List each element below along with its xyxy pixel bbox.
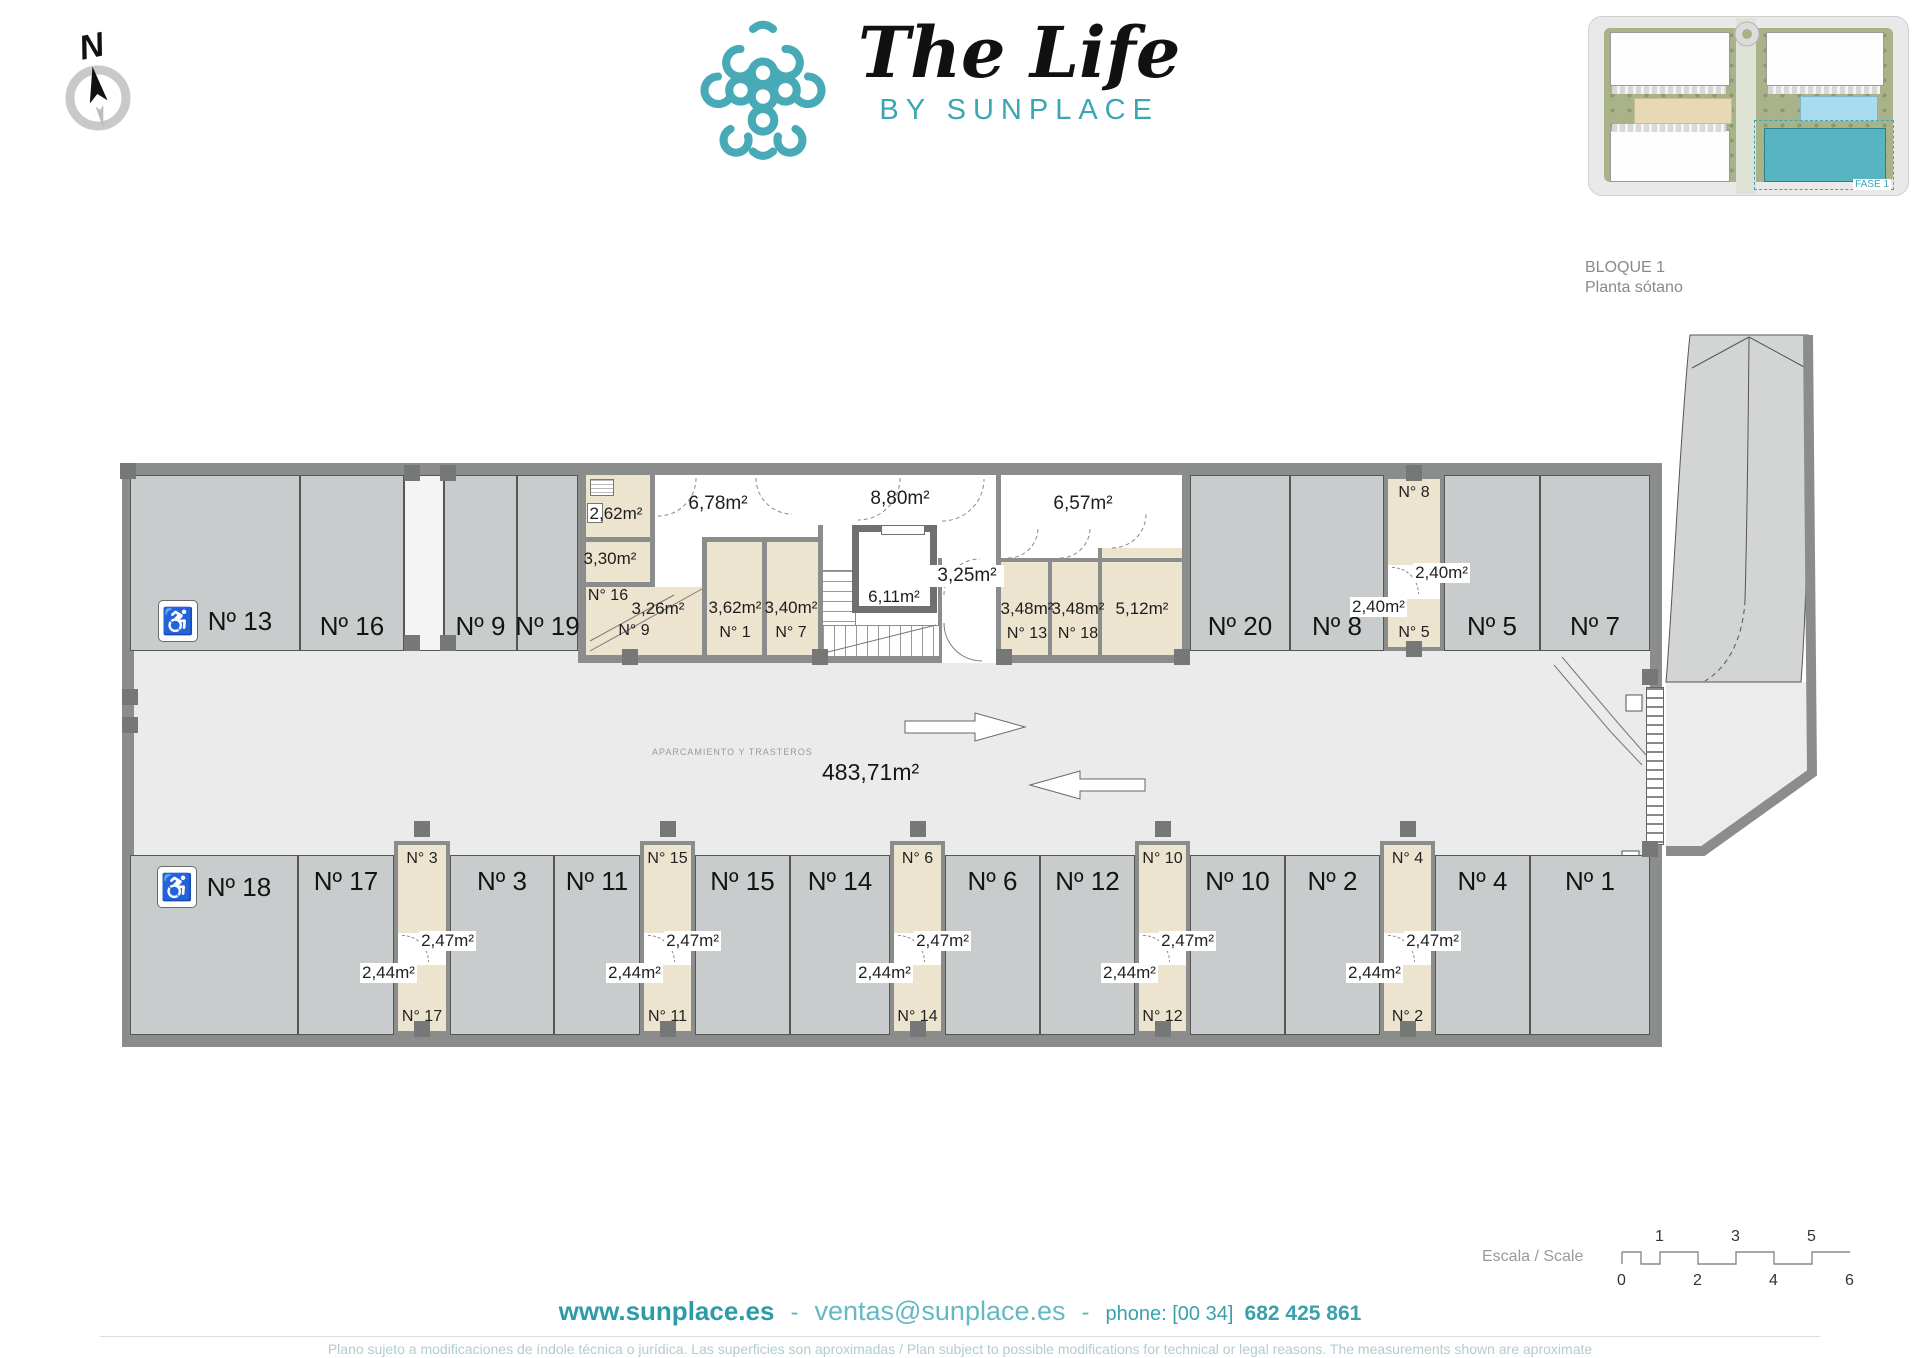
footer-divider	[100, 1336, 1820, 1337]
thumb-pool	[1800, 96, 1878, 122]
gate-guide-lines	[1522, 643, 1662, 873]
room-name: N° 9	[608, 622, 660, 640]
storage-room-area: 2,44m²	[1101, 963, 1158, 983]
block-info-line2: Planta sótano	[1585, 278, 1683, 298]
thumb-building-ne	[1766, 32, 1884, 86]
area-label: 3,30m²	[578, 549, 642, 569]
structural-pillar	[404, 465, 420, 481]
storage-room-area: 2,47m²	[664, 931, 721, 951]
structural-pillar	[1406, 465, 1422, 481]
parking-stall-Nº-17: Nº 17	[298, 855, 394, 1035]
area-label: 3,40m²	[762, 598, 820, 618]
structural-pillar	[122, 717, 138, 733]
scale-tick: 1	[1655, 1228, 1664, 1246]
storage-column: N° 8N° 52,40m²2,40m²	[1384, 475, 1444, 651]
thumb-building-nw	[1610, 32, 1730, 86]
storage-room-area: 2,47m²	[1159, 931, 1216, 951]
website-text: www.sunplace.es	[559, 1296, 775, 1327]
parking-stall-Nº-9: Nº 9	[444, 475, 517, 651]
parking-stall-Nº-2: Nº 2	[1285, 855, 1380, 1035]
structural-pillar	[440, 635, 456, 651]
structural-pillar	[404, 635, 420, 651]
structural-pillar	[1155, 821, 1171, 837]
stall-label-row: Nº 5	[1445, 611, 1539, 642]
storage-room-area: 2,44m²	[360, 963, 417, 983]
structural-pillar	[910, 1021, 926, 1037]
room-name: N° 18	[1050, 625, 1106, 643]
structural-pillar	[1406, 641, 1422, 657]
stall-label-row: Nº 12	[1041, 866, 1134, 897]
stall-label: Nº 1	[1565, 866, 1615, 897]
room-name: N° 13	[998, 625, 1056, 643]
stall-label: Nº 3	[477, 866, 527, 897]
wall-right-lower	[1650, 843, 1662, 1047]
block-info-line1: BLOQUE 1	[1585, 258, 1683, 278]
room-name: N° 1	[706, 624, 764, 642]
email-text: ventas@sunplace.es	[814, 1296, 1065, 1327]
parking-stall-Nº-19: Nº 19	[517, 475, 578, 651]
structural-pillar	[1155, 1021, 1171, 1037]
storage-room-name: N° 6	[894, 850, 941, 868]
accessibility-icon: ♿	[157, 866, 197, 908]
structural-pillar	[120, 463, 136, 479]
parking-stall-Nº-13: ♿Nº 13	[130, 475, 300, 651]
parking-stall-Nº-8: Nº 8	[1290, 475, 1384, 651]
stall-label-row: Nº 2	[1286, 866, 1379, 897]
site-plan-thumbnail: FASE 1	[1578, 2, 1915, 208]
parking-stall-Nº-11: Nº 11	[554, 855, 640, 1035]
structural-pillar	[122, 689, 138, 705]
stall-label: Nº 6	[968, 866, 1018, 897]
stall-label-row: Nº 16	[301, 611, 403, 642]
structural-pillar	[1174, 649, 1190, 665]
structural-pillar	[660, 821, 676, 837]
stall-gap	[404, 475, 444, 651]
storage-room-name: N° 3	[398, 850, 446, 868]
separator: -	[1082, 1299, 1090, 1327]
storage-room-area: 2,44m²	[606, 963, 663, 983]
storage-room-name: N° 15	[644, 850, 691, 868]
structural-pillar	[1642, 841, 1658, 857]
stall-label-row: Nº 3	[451, 866, 553, 897]
stall-label-row: Nº 10	[1191, 866, 1284, 897]
structural-pillar	[1642, 669, 1658, 685]
stall-label: Nº 20	[1208, 611, 1272, 642]
parking-stall-Nº-12: Nº 12	[1040, 855, 1135, 1035]
area-label: 5,12m²	[1106, 599, 1178, 619]
phone-number: 682 425 861	[1245, 1302, 1362, 1325]
thumb-fase-label: FASE 1	[1853, 179, 1891, 190]
stall-label: Nº 7	[1570, 611, 1620, 642]
floor-plan-sheet: { "brand": { "title": "The Life", "subti…	[0, 0, 1920, 1358]
stall-label-row: Nº 19	[518, 611, 577, 642]
stall-label-row: Nº 4	[1436, 866, 1529, 897]
storage-room-name: N° 4	[1384, 850, 1431, 868]
brand-logo: The Life BY SUNPLACE	[688, 14, 1180, 164]
storage-room-area: 2,47m²	[914, 931, 971, 951]
structural-pillar	[622, 649, 638, 665]
structural-pillar	[440, 465, 456, 481]
footer-contact: www.sunplace.es - ventas@sunplace.es - p…	[0, 1296, 1920, 1327]
structural-pillar	[812, 649, 828, 665]
car-ramp	[1655, 300, 1865, 880]
elevator-area: 6,11m²	[860, 587, 928, 607]
thumb-parking-ne	[1768, 86, 1880, 94]
stall-label: Nº 5	[1467, 611, 1517, 642]
thumb-roundabout	[1728, 18, 1766, 50]
stall-label: Nº 10	[1205, 866, 1269, 897]
thumb-building-sw	[1610, 130, 1730, 182]
stall-label: Nº 4	[1458, 866, 1508, 897]
storage-room-name: N° 8	[1388, 484, 1440, 502]
area-label: 2,62m²	[586, 504, 646, 524]
parking-stall-Nº-20: Nº 20	[1190, 475, 1290, 651]
area-label: 3,48m²	[1050, 599, 1106, 619]
storage-room-area: 2,44m²	[856, 963, 913, 983]
thumb-parking-sw	[1612, 124, 1726, 132]
disclaimer-text: Plano sujeto a modificaciones de índole …	[0, 1341, 1920, 1357]
stall-label-row: Nº 6	[946, 866, 1039, 897]
compass-n-label: N	[76, 28, 109, 68]
stall-label-row: Nº 7	[1541, 611, 1649, 642]
stall-label-row: Nº 14	[791, 866, 889, 897]
room-name: N° 16	[582, 587, 634, 605]
storage-column: N° 15N° 112,47m²2,44m²	[640, 841, 695, 1035]
landing-area: 3,25m²	[930, 565, 1004, 587]
scale-label: Escala / Scale	[1482, 1248, 1583, 1266]
stall-label: Nº 12	[1055, 866, 1119, 897]
structural-pillar	[414, 1021, 430, 1037]
wall-top	[122, 463, 1662, 475]
structural-pillar	[910, 821, 926, 837]
direction-arrows	[902, 708, 1162, 803]
structural-pillar	[996, 649, 1012, 665]
storage-column: N° 4N° 22,47m²2,44m²	[1380, 841, 1435, 1035]
scale-tick: 3	[1731, 1228, 1740, 1246]
block-info: BLOQUE 1 Planta sótano	[1585, 258, 1683, 298]
stall-label-row: Nº 15	[696, 866, 789, 897]
floor-plan: 2,62m² 3,30m² N° 16 3,26m² N° 9 6,78m² 8…	[122, 463, 1662, 1047]
logo-knot-icon	[688, 14, 838, 164]
structural-pillar	[1400, 1021, 1416, 1037]
corridor-area: 8,80m²	[860, 488, 940, 510]
north-compass: N	[50, 28, 150, 148]
stall-label: Nº 15	[710, 866, 774, 897]
stall-label: Nº 17	[314, 866, 378, 897]
phone-text: phone: [00 34] 682 425 861	[1106, 1302, 1362, 1326]
parking-stall-Nº-1: Nº 1	[1530, 855, 1650, 1035]
stall-label-row: Nº 17	[299, 866, 393, 897]
aisle-caption: APARCAMIENTO Y TRASTEROS	[652, 747, 813, 757]
thumb-parking-nw	[1612, 86, 1726, 94]
corridor-area: 6,57m²	[1043, 493, 1123, 515]
storage-room-name: N° 10	[1139, 850, 1186, 868]
stall-label: Nº 11	[566, 866, 629, 897]
stall-label-row: Nº 11	[555, 866, 639, 897]
stall-label: Nº 18	[207, 872, 271, 903]
stall-label: Nº 9	[456, 611, 506, 642]
storage-column: N° 10N° 122,47m²2,44m²	[1135, 841, 1190, 1035]
area-label: 3,26m²	[628, 599, 688, 619]
structural-pillar	[1400, 821, 1416, 837]
parking-stall-Nº-18: ♿Nº 18	[130, 855, 298, 1035]
area-label: 3,48m²	[998, 599, 1056, 619]
area-label: 3,62m²	[706, 598, 764, 618]
storage-room-area: 2,47m²	[419, 931, 476, 951]
room-name: N° 7	[762, 624, 820, 642]
stall-label: Nº 19	[515, 611, 579, 642]
structural-pillar	[660, 1021, 676, 1037]
scale-tick: 4	[1769, 1272, 1778, 1290]
storage-column: N° 3N° 172,47m²2,44m²	[394, 841, 450, 1035]
thumb-courtyard-deck	[1634, 98, 1732, 124]
structural-pillar	[414, 821, 430, 837]
scale-tick: 5	[1807, 1228, 1816, 1246]
scale-bar	[1608, 1244, 1878, 1280]
stall-label-row: Nº 1	[1531, 866, 1649, 897]
storage-room-name: N° 5	[1388, 624, 1440, 642]
brand-title: The Life	[858, 14, 1180, 92]
scale-tick: 0	[1617, 1272, 1626, 1290]
stall-label-row: Nº 20	[1191, 611, 1289, 642]
storage-room-area: 2,40m²	[1413, 563, 1470, 583]
storage-room-area: 2,44m²	[1346, 963, 1403, 983]
accessibility-icon: ♿	[158, 600, 198, 642]
wall-bottom	[122, 1035, 1662, 1047]
stall-label: Nº 13	[208, 606, 272, 637]
stall-label-row: ♿Nº 18	[131, 866, 297, 908]
thumb-fase-box: FASE 1	[1754, 120, 1894, 190]
core-block: 2,62m² 3,30m² N° 16 3,26m² N° 9 6,78m² 8…	[578, 475, 1190, 663]
scale-tick: 2	[1693, 1272, 1702, 1290]
scale-tick: 6	[1845, 1272, 1854, 1290]
storage-room-area: 2,40m²	[1350, 597, 1407, 617]
separator: -	[790, 1299, 798, 1327]
storage-room-area: 2,47m²	[1404, 931, 1461, 951]
stall-label: Nº 14	[808, 866, 872, 897]
parking-stall-Nº-7: Nº 7	[1540, 475, 1650, 651]
corridor-area: 6,78m²	[678, 493, 758, 515]
stall-label-row: ♿Nº 13	[131, 600, 299, 642]
parking-stall-Nº-14: Nº 14	[790, 855, 890, 1035]
storage-column: N° 6N° 142,47m²2,44m²	[890, 841, 945, 1035]
compass-icon: N	[50, 28, 150, 148]
brand-subtitle: BY SUNPLACE	[879, 94, 1159, 127]
stall-label: Nº 16	[320, 611, 384, 642]
parking-stall-Nº-16: Nº 16	[300, 475, 404, 651]
stall-label: Nº 2	[1308, 866, 1358, 897]
